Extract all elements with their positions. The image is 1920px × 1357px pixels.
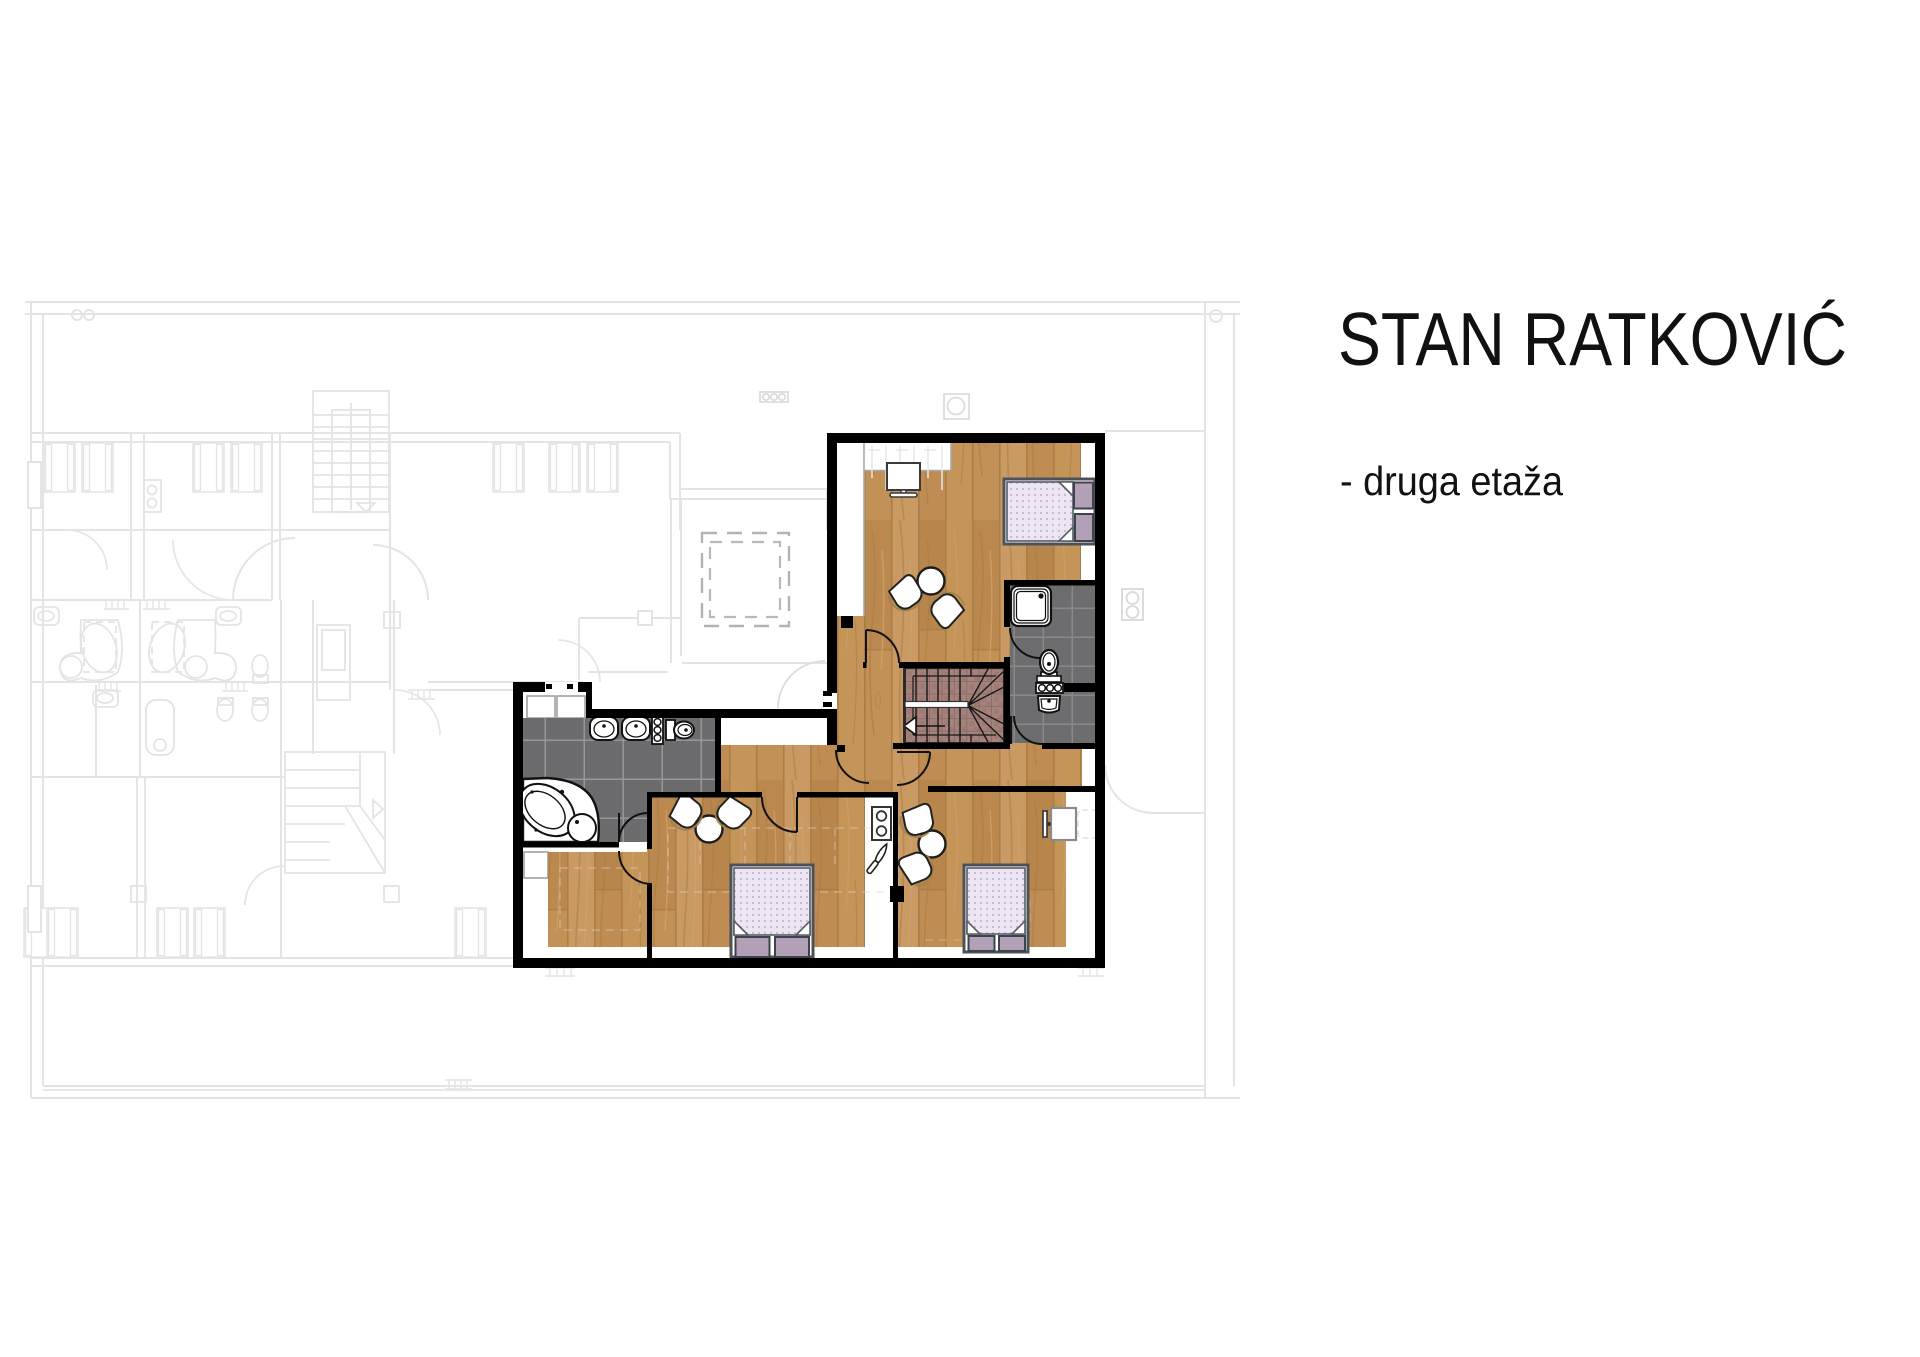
svg-text:- druga etaža: - druga etaža bbox=[1340, 458, 1563, 504]
svg-text:STAN RATKOVIĆ: STAN RATKOVIĆ bbox=[1338, 298, 1847, 382]
